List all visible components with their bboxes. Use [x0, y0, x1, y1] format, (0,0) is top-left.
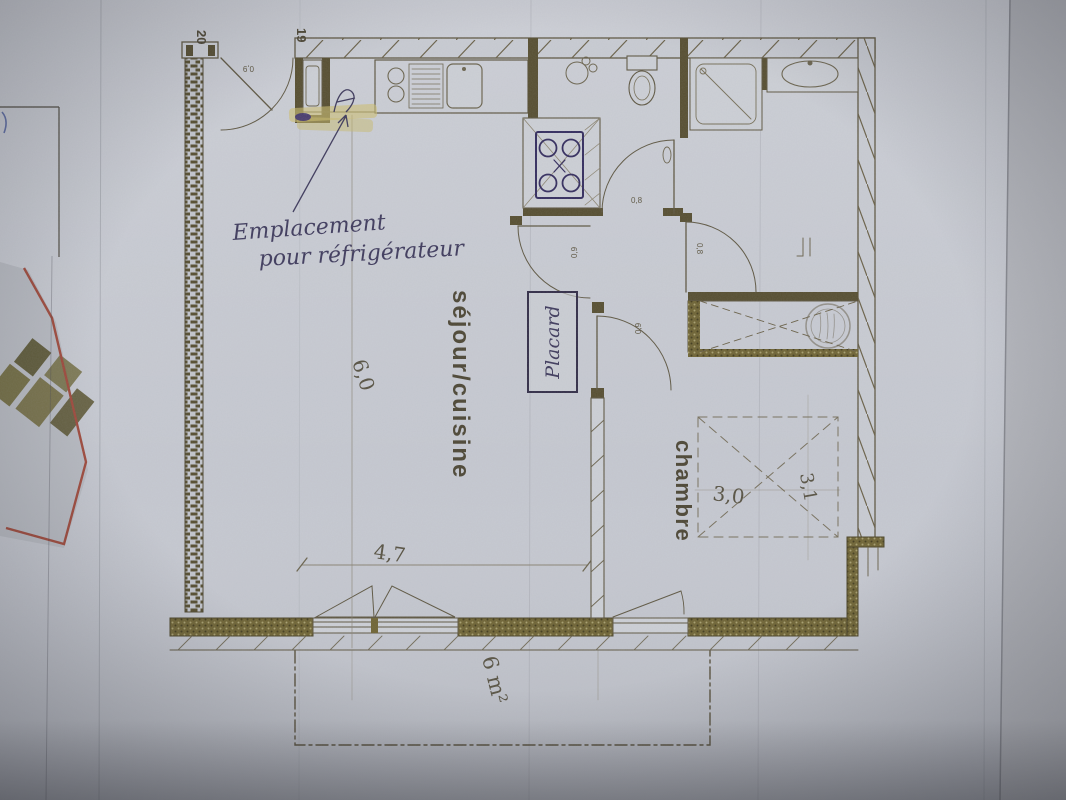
floorplan-drawing: séjour/cuisine chambre 20 19 6,0 4,7 3,0… [0, 0, 1066, 800]
floorplan-photo: séjour/cuisine chambre 20 19 6,0 4,7 3,0… [0, 0, 1066, 800]
vignette [0, 0, 1066, 800]
